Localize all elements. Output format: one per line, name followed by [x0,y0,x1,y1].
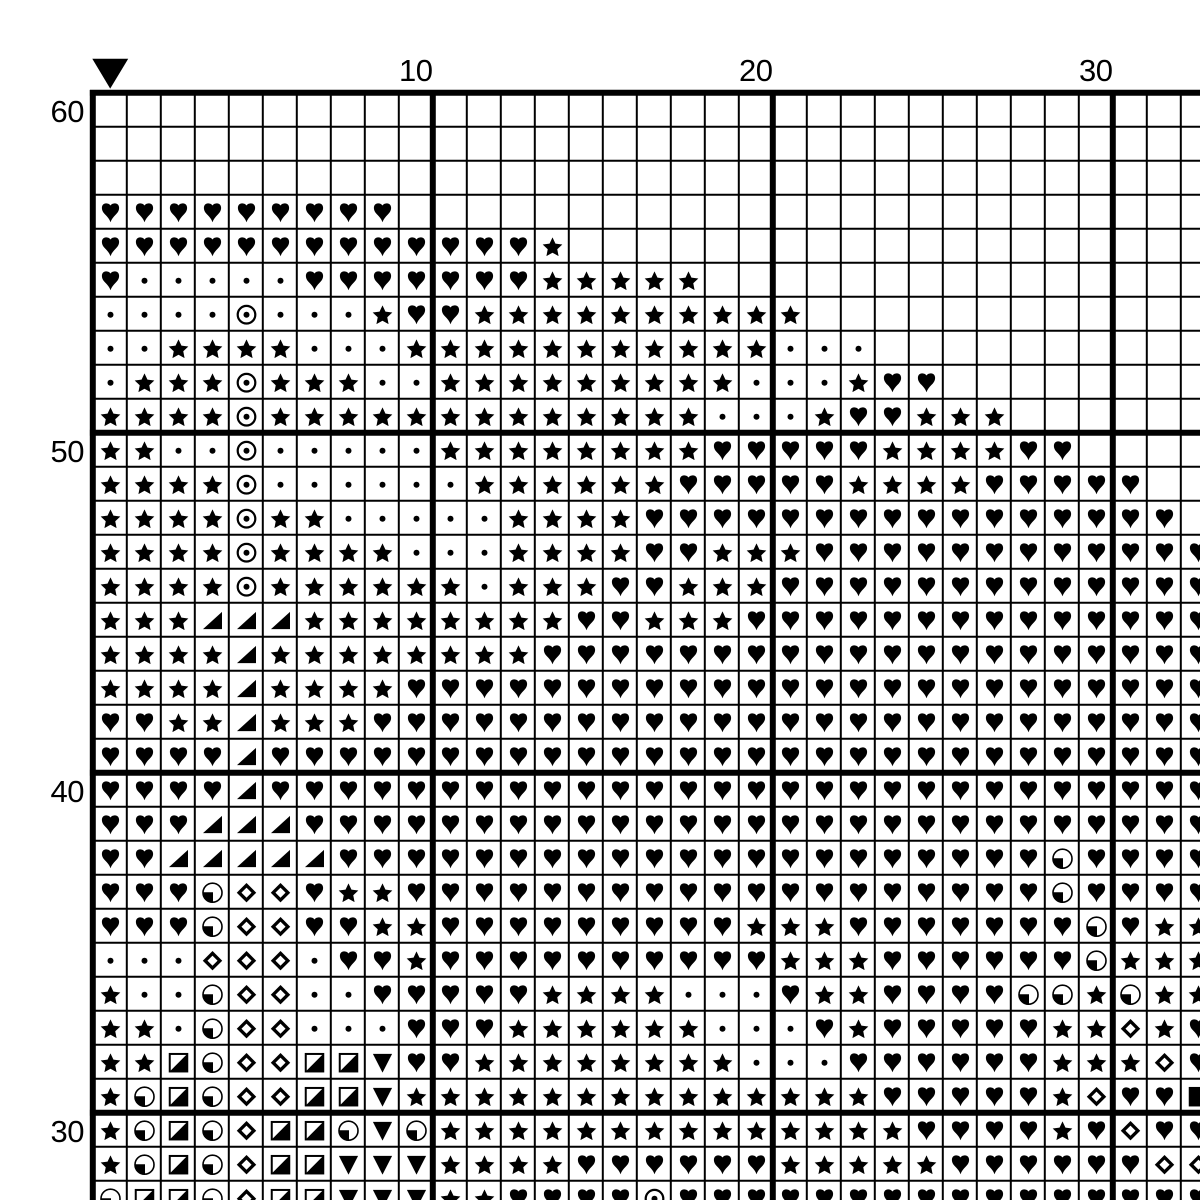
svg-text:40: 40 [51,774,85,809]
svg-text:10: 10 [399,53,433,88]
svg-text:20: 20 [739,53,773,88]
svg-text:60: 60 [51,94,85,129]
svg-text:30: 30 [51,1114,85,1149]
svg-text:30: 30 [1079,53,1113,88]
svg-text:50: 50 [51,434,85,469]
